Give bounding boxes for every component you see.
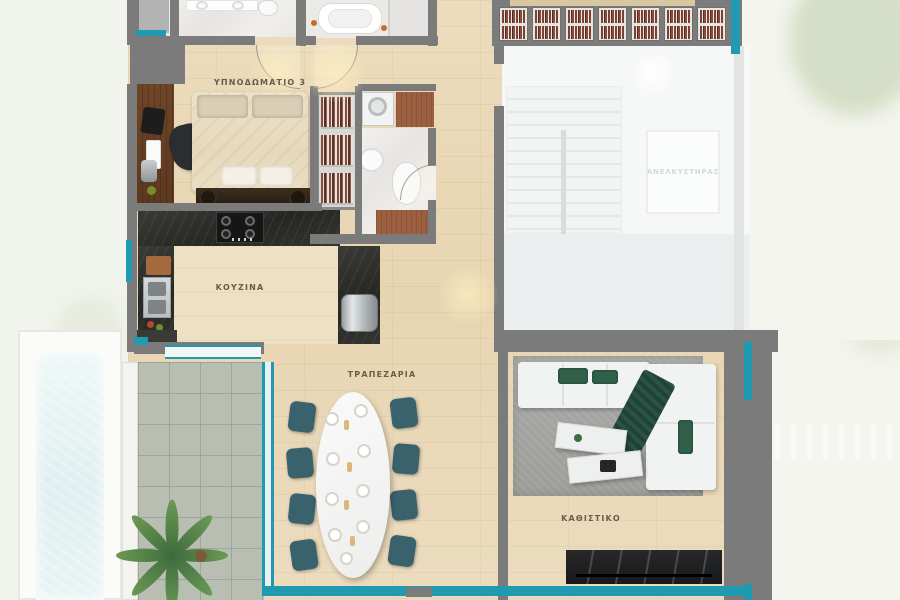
books bbox=[535, 26, 558, 39]
wall bbox=[356, 36, 438, 45]
light-glow bbox=[250, 46, 306, 96]
dining-chair bbox=[286, 447, 315, 479]
wall bbox=[170, 0, 179, 37]
wall bbox=[498, 352, 508, 600]
book-cell bbox=[631, 7, 660, 41]
napkin bbox=[344, 420, 349, 430]
apple bbox=[147, 186, 156, 195]
book-cell bbox=[664, 7, 693, 41]
window bbox=[126, 240, 132, 282]
light-glow bbox=[438, 262, 498, 328]
washing-machine-drum bbox=[368, 97, 387, 116]
window bbox=[134, 337, 148, 345]
wall bbox=[358, 84, 436, 91]
wall-faded bbox=[734, 46, 744, 330]
books bbox=[634, 10, 657, 23]
cabinet bbox=[396, 92, 434, 127]
terrace-window bbox=[165, 345, 261, 359]
plate bbox=[357, 444, 371, 458]
tv-console bbox=[566, 550, 722, 584]
books bbox=[502, 26, 525, 39]
sink bbox=[232, 1, 244, 10]
toilet bbox=[258, 0, 278, 16]
bed-pillow bbox=[197, 95, 248, 118]
bed-pillow bbox=[252, 95, 303, 118]
dining-chair bbox=[288, 493, 317, 526]
green-pillow bbox=[592, 370, 618, 384]
wall bbox=[428, 128, 436, 166]
elevator: ΑΝΕΛΚΥΣΤΗΡΑΣ bbox=[646, 130, 720, 214]
wall-niche bbox=[139, 0, 169, 33]
door-swing bbox=[400, 164, 436, 200]
wardrobe bbox=[316, 92, 358, 210]
dining-chair bbox=[392, 443, 421, 475]
wall bbox=[127, 84, 137, 210]
vegetable bbox=[147, 321, 154, 328]
books bbox=[700, 10, 723, 23]
window bbox=[731, 0, 740, 54]
book-cell bbox=[697, 7, 726, 41]
plate bbox=[325, 492, 339, 506]
kitchen-floor bbox=[172, 244, 340, 344]
cabinet bbox=[376, 210, 434, 236]
dining-chair bbox=[287, 401, 316, 434]
wall bbox=[298, 36, 316, 45]
cutting-board bbox=[146, 256, 171, 275]
dining-label: ΤΡΑΠΕΖΑΡΙΑ bbox=[330, 370, 434, 379]
living-label: ΚΑΘΙΣΤΙΚΟ bbox=[536, 514, 646, 523]
sink-basin bbox=[148, 300, 166, 314]
wall-pier bbox=[406, 587, 432, 597]
books bbox=[568, 10, 591, 23]
books bbox=[568, 26, 591, 39]
sink bbox=[196, 1, 208, 10]
book-cell bbox=[598, 7, 627, 41]
wall-shaft bbox=[130, 38, 185, 84]
napkin bbox=[347, 462, 352, 472]
napkin bbox=[344, 500, 349, 510]
glass-wall bbox=[262, 362, 274, 588]
stove-knobs bbox=[232, 238, 252, 241]
stove bbox=[216, 212, 264, 243]
wall bbox=[310, 86, 318, 211]
burner bbox=[221, 229, 231, 239]
stair-rail bbox=[561, 130, 566, 234]
table-object bbox=[600, 460, 616, 472]
tv-console-groove bbox=[576, 574, 712, 577]
kitchen-label: ΚΟΥΖΙΝΑ bbox=[195, 283, 285, 292]
bathtub-basin bbox=[328, 9, 372, 28]
sink-basin bbox=[148, 282, 166, 296]
wardrobe-clothes bbox=[321, 135, 353, 167]
green-pillow bbox=[678, 420, 693, 454]
dining-chair bbox=[390, 489, 419, 522]
wall bbox=[134, 203, 322, 211]
stairwell-landing bbox=[502, 234, 750, 344]
bath-accessory bbox=[381, 25, 387, 31]
plate bbox=[328, 528, 342, 542]
window bbox=[744, 342, 752, 400]
window bbox=[744, 584, 752, 600]
wall bbox=[428, 200, 436, 236]
book-cell bbox=[499, 7, 528, 41]
burner bbox=[221, 216, 231, 226]
bookshelf-top bbox=[510, 0, 695, 6]
book-cell bbox=[565, 7, 594, 41]
bath-accessory bbox=[311, 20, 317, 26]
bedroom-label: ΥΠΝΟΔΩΜΑΤΙΟ 3 bbox=[205, 78, 315, 87]
desk-lamp bbox=[141, 160, 157, 182]
books bbox=[634, 26, 657, 39]
books bbox=[601, 10, 624, 23]
books bbox=[700, 26, 723, 39]
faded-fixture bbox=[634, 55, 674, 99]
plate bbox=[354, 404, 368, 418]
book-cell bbox=[532, 7, 561, 41]
door-arc bbox=[400, 164, 436, 200]
fridge bbox=[341, 294, 378, 332]
dining-chair bbox=[389, 397, 418, 430]
wall bbox=[310, 234, 436, 244]
plate bbox=[356, 520, 370, 534]
bed-cushion bbox=[259, 166, 293, 186]
plate bbox=[356, 484, 370, 498]
napkin bbox=[350, 536, 355, 546]
crosswalk bbox=[758, 425, 900, 459]
light-glow bbox=[300, 42, 370, 102]
terrace-edge bbox=[122, 362, 138, 600]
books bbox=[667, 10, 690, 23]
green-pillow bbox=[558, 368, 588, 384]
burner bbox=[245, 216, 255, 226]
desk-pad bbox=[140, 107, 165, 136]
plate bbox=[325, 412, 339, 426]
floor-plan: ΑΝΕΛΚΥΣΤΗΡΑΣ bbox=[0, 0, 900, 600]
books bbox=[601, 26, 624, 39]
books bbox=[502, 10, 525, 23]
dining-chair bbox=[387, 534, 417, 567]
pool bbox=[36, 352, 104, 600]
elevator-label: ΑΝΕΛΚΥΣΤΗΡΑΣ bbox=[647, 168, 719, 176]
dining-chair bbox=[289, 538, 319, 571]
wall bbox=[494, 106, 504, 346]
glass-wall-bottom bbox=[262, 586, 744, 596]
wall bbox=[355, 86, 362, 234]
wall bbox=[494, 44, 504, 64]
wardrobe-clothes bbox=[321, 173, 353, 205]
bed-cushion bbox=[221, 166, 257, 186]
books bbox=[667, 26, 690, 39]
plate bbox=[340, 552, 353, 565]
wc-sink bbox=[359, 148, 384, 172]
kitchen-sink bbox=[143, 277, 171, 318]
terrace bbox=[138, 362, 264, 600]
books bbox=[535, 10, 558, 23]
plate bbox=[326, 452, 340, 466]
table-plant bbox=[574, 434, 582, 442]
